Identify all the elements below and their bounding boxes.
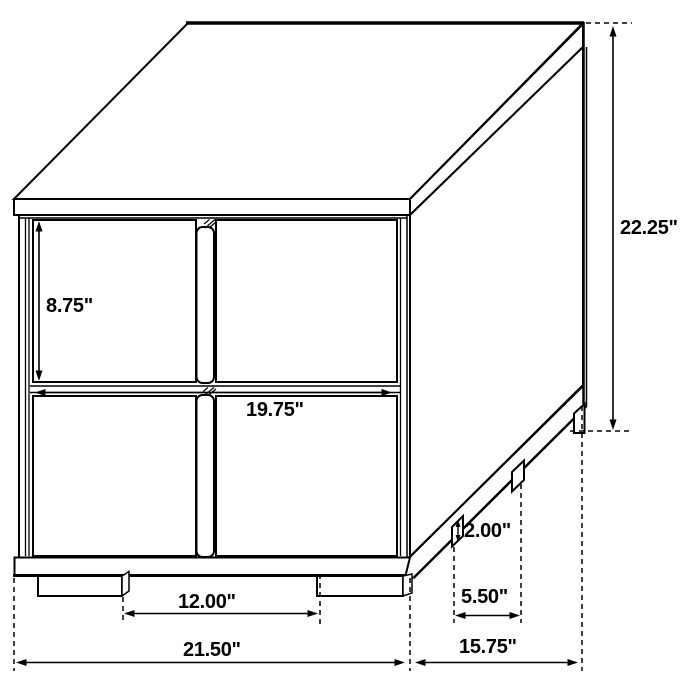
label-overall-width: 21.50" bbox=[183, 640, 241, 660]
dim-drawer-opening-width bbox=[35, 389, 392, 396]
label-overall-height: 22.25" bbox=[620, 218, 678, 238]
handle-rail-lower bbox=[197, 388, 217, 558]
foot-front-right bbox=[317, 574, 412, 596]
handle-notch-hatch bbox=[203, 388, 216, 396]
drawer-front-top-right bbox=[216, 220, 397, 382]
dim-overall-height bbox=[610, 26, 617, 430]
label-overall-depth: 15.75" bbox=[459, 637, 517, 657]
dim-side-foot-gap bbox=[455, 612, 520, 619]
base-rail-front bbox=[13, 558, 410, 576]
drawer-front-bottom-right bbox=[216, 396, 397, 556]
label-foot-height: 2.00" bbox=[464, 521, 511, 541]
foot-side-mid bbox=[512, 461, 524, 492]
drawer-front-bottom-left bbox=[33, 396, 196, 556]
furniture-line-drawing bbox=[0, 0, 700, 700]
foot-back bbox=[574, 404, 585, 433]
dim-overall-depth bbox=[415, 659, 578, 666]
label-drawer-opening-height: 8.75" bbox=[46, 296, 93, 316]
label-drawer-opening-width: 19.75" bbox=[246, 400, 304, 420]
foot-front-left bbox=[38, 572, 129, 597]
top-edge-front bbox=[14, 199, 410, 215]
handle-notch-hatch bbox=[204, 220, 217, 229]
label-side-foot-gap: 5.50" bbox=[461, 587, 508, 607]
dimension-diagram: 8.75" 19.75" 22.25" 2.00" 5.50" 12.00" 2… bbox=[0, 0, 700, 700]
handle-rail-upper bbox=[197, 220, 217, 384]
label-front-foot-gap: 12.00" bbox=[178, 592, 236, 612]
